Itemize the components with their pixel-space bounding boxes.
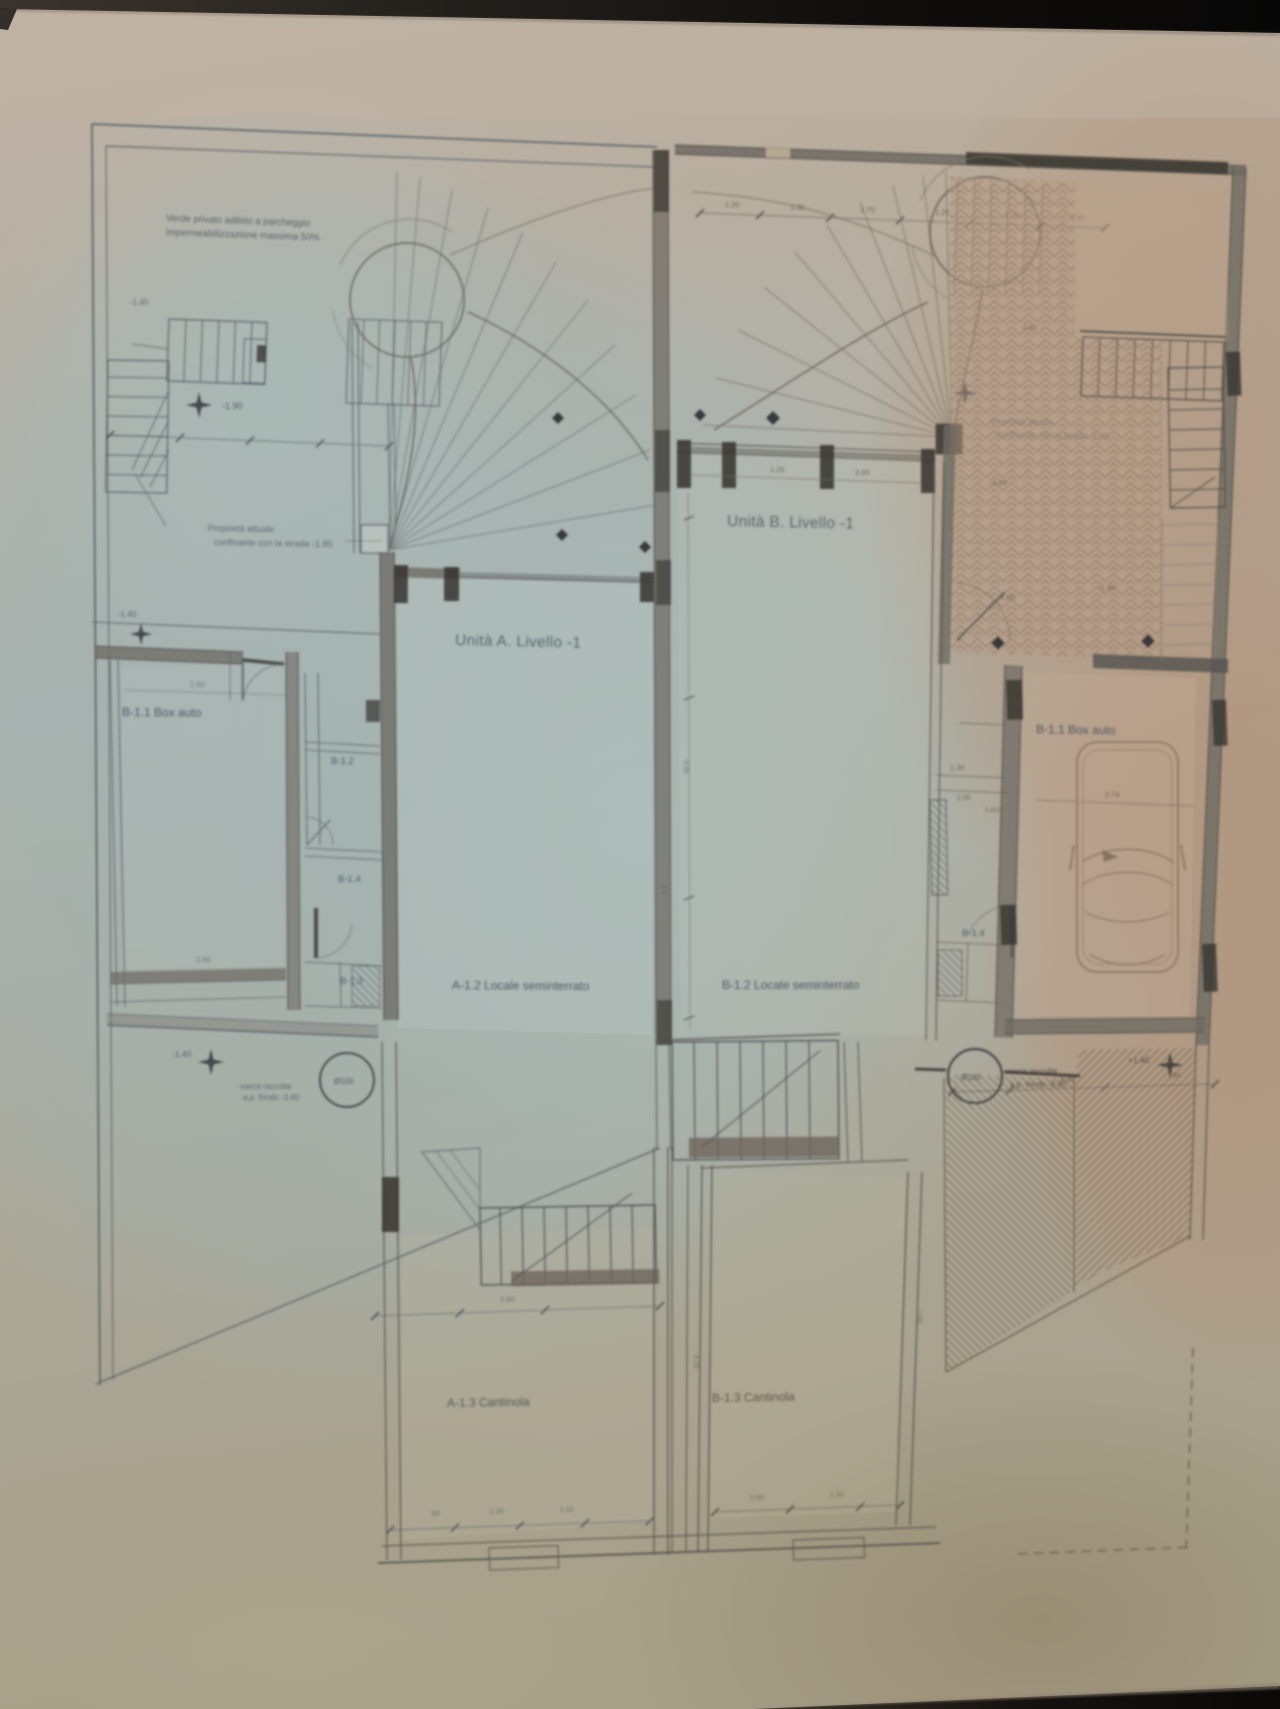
svg-text:B-1.4: B-1.4 bbox=[962, 928, 985, 939]
svg-text:2.95: 2.95 bbox=[915, 1310, 922, 1324]
svg-text:2.50: 2.50 bbox=[750, 1495, 764, 1502]
svg-text:B-1.2 Locale seminterrato: B-1.2 Locale seminterrato bbox=[722, 978, 860, 992]
svg-text:B-1.3: B-1.3 bbox=[340, 976, 363, 987]
svg-text:B-1.4: B-1.4 bbox=[338, 874, 361, 885]
svg-text:2.74: 2.74 bbox=[1105, 790, 1120, 799]
svg-text:B-1.1 Box auto: B-1.1 Box auto bbox=[1036, 722, 1116, 737]
svg-text:confinante con la strada -1.8: confinante con la strada -1.85 bbox=[214, 537, 333, 549]
svg-text:a.p. fondo -3.40: a.p. fondo -3.40 bbox=[243, 1093, 300, 1102]
svg-text:2.50: 2.50 bbox=[190, 680, 205, 689]
svg-text:-1.20: -1.20 bbox=[1020, 323, 1037, 332]
svg-text:-1.40: -1.40 bbox=[172, 1049, 192, 1059]
svg-text:.60: .60 bbox=[430, 1511, 440, 1518]
svg-text:B-1.2: B-1.2 bbox=[331, 756, 354, 767]
svg-text:1.20: 1.20 bbox=[770, 465, 785, 474]
svg-text:A-1.3 Cantinola: A-1.3 Cantinola bbox=[447, 1395, 530, 1410]
svg-text:-1.40: -1.40 bbox=[1098, 583, 1115, 592]
svg-text:1.50: 1.50 bbox=[560, 1507, 574, 1514]
svg-text:Ø100: Ø100 bbox=[334, 1077, 354, 1086]
svg-text:Unità A. Livello -1: Unità A. Livello -1 bbox=[455, 632, 582, 652]
svg-text:5.9: 5.9 bbox=[660, 885, 667, 895]
svg-text:3.95: 3.95 bbox=[855, 468, 870, 477]
svg-text:4.15: 4.15 bbox=[692, 1355, 699, 1369]
svg-text:A-1.2 Locale seminterrato: A-1.2 Locale seminterrato bbox=[452, 978, 590, 993]
svg-text:4.05: 4.05 bbox=[682, 760, 689, 774]
svg-text:2.80: 2.80 bbox=[500, 1294, 515, 1304]
svg-text:B-1.1 Box auto: B-1.1 Box auto bbox=[122, 705, 202, 720]
svg-text:1.20: 1.20 bbox=[830, 1492, 844, 1499]
svg-text:1.20: 1.20 bbox=[725, 200, 740, 210]
svg-text:-1.40: -1.40 bbox=[130, 298, 149, 307]
svg-text:2.60: 2.60 bbox=[196, 955, 211, 964]
svg-text:1.25: 1.25 bbox=[935, 208, 950, 218]
svg-text:-1.90: -1.90 bbox=[222, 401, 243, 411]
svg-text:-1.88: -1.88 bbox=[990, 478, 1007, 487]
svg-text:1.20: 1.20 bbox=[950, 763, 965, 772]
svg-text:1.20: 1.20 bbox=[490, 1509, 504, 1516]
svg-text:-1.40: -1.40 bbox=[118, 610, 137, 619]
svg-text:4.00: 4.00 bbox=[1000, 593, 1015, 602]
svg-text:2.05: 2.05 bbox=[957, 795, 971, 802]
svg-text:Proprietà attuale: Proprietà attuale bbox=[208, 523, 274, 534]
svg-text:B-1.3 Cantinola: B-1.3 Cantinola bbox=[712, 1390, 795, 1405]
svg-text:Unità B. Livello -1: Unità B. Livello -1 bbox=[727, 513, 855, 533]
svg-text:vasca raccolta: vasca raccolta bbox=[240, 1082, 292, 1091]
